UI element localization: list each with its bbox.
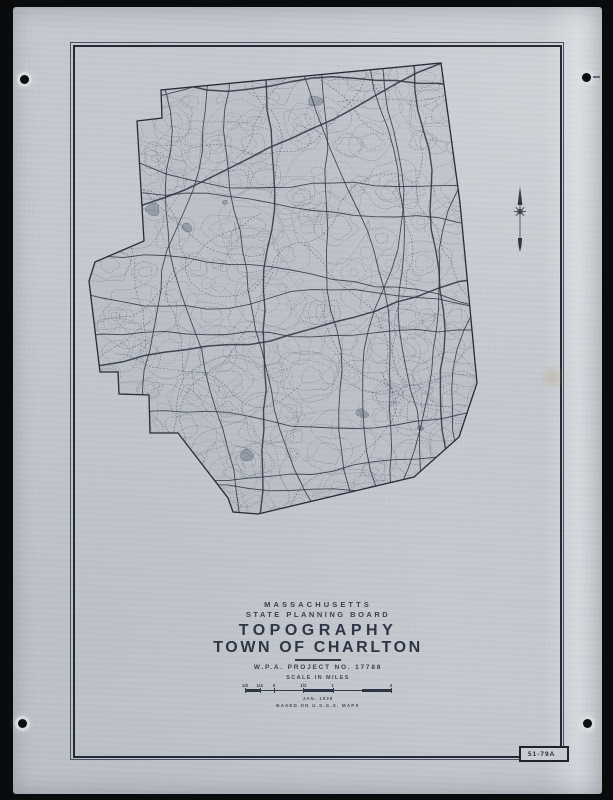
scale-bar-tick (303, 688, 304, 693)
title-block: MASSACHUSETTS STATE PLANNING BOARD TOPOG… (128, 600, 508, 709)
scale-bar-tick (260, 688, 261, 693)
scale-bar: 1/21/401/212 (245, 683, 391, 694)
scale-bar-tick-label: 1/2 (242, 683, 248, 688)
paper-stain (538, 364, 568, 390)
scale-bar-tick-label: 0 (273, 683, 276, 688)
punch-hole (20, 75, 29, 84)
scale-bar-tick-label: 2 (390, 683, 393, 688)
map-agency-label: STATE PLANNING BOARD (128, 610, 508, 619)
map-date: JAN. 1939 (128, 696, 508, 702)
punch-hole (583, 719, 592, 728)
scale-caption: SCALE IN MILES (128, 675, 508, 682)
scale-bar-tick (245, 688, 246, 693)
photo-background: MASSACHUSETTS STATE PLANNING BOARD TOPOG… (0, 0, 613, 800)
scale-bar-tick-label: 1/4 (256, 683, 262, 688)
scale-bar-tick-label: 1/2 (300, 683, 306, 688)
punch-hole (18, 719, 27, 728)
scale-bar-segment (362, 689, 391, 692)
map-subtitle-town: TOWN OF CHARLTON (128, 639, 508, 656)
north-arrow-icon (514, 187, 526, 253)
sheet-number-box: 51-79A (519, 746, 569, 762)
punch-hole (582, 73, 591, 82)
map-state-label: MASSACHUSETTS (128, 600, 508, 609)
town-area (89, 63, 477, 514)
scale-bar-tick (333, 688, 334, 693)
map-title: TOPOGRAPHY (128, 622, 508, 639)
punch-hole-dash (593, 76, 600, 78)
scale-bar-segment (303, 689, 332, 692)
scale-bar-tick (274, 688, 275, 693)
scale-bar-tick (391, 688, 392, 693)
source-credit: BASED ON U.S.G.S. MAPS (128, 703, 508, 709)
project-number-label: W.P.A. PROJECT NO. 17788 (128, 664, 508, 672)
scale-bar-segment (245, 689, 260, 692)
sheet-number: 51-79A (521, 751, 555, 758)
title-underline (295, 659, 341, 661)
scale-bar-tick-label: 1 (331, 683, 334, 688)
